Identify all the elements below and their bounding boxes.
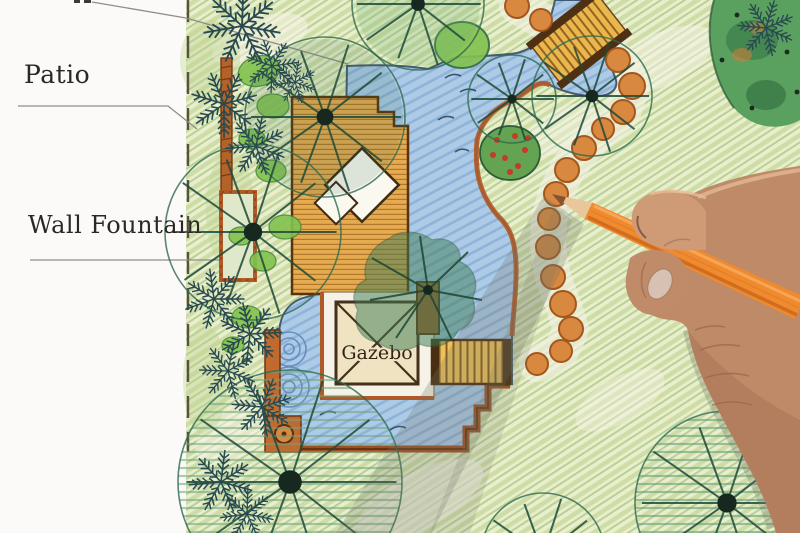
photo-landscape-plan: Gazebo	[0, 0, 800, 533]
stepping-stone	[559, 317, 583, 341]
wall-fountain-label: Wall Fountain	[28, 211, 202, 239]
stepping-stone	[550, 340, 572, 362]
berry-bush	[480, 126, 540, 180]
stepping-stone	[526, 353, 548, 375]
stepping-stone	[550, 291, 576, 317]
stepping-stone	[530, 9, 552, 31]
stepping-stone	[555, 158, 579, 182]
stepping-stone	[505, 0, 529, 18]
patio-label: Patio	[24, 60, 90, 89]
